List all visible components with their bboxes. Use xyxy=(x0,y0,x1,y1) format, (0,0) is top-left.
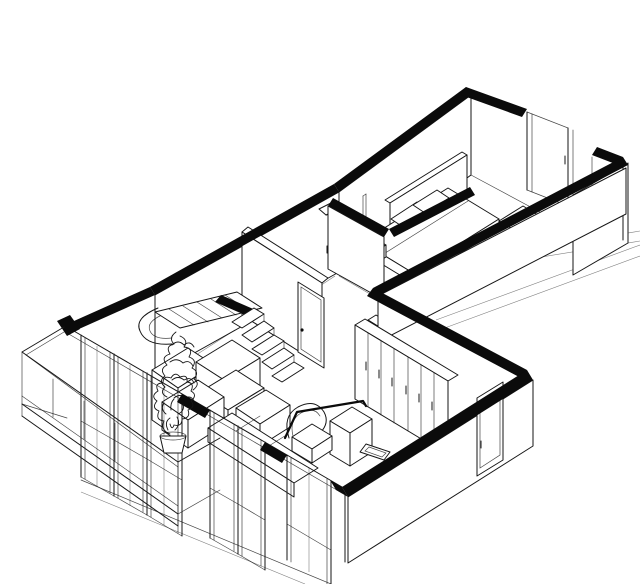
facade-window xyxy=(81,335,114,496)
kitchen xyxy=(292,407,390,466)
door-handle-icon xyxy=(300,328,303,331)
floorplan-figure xyxy=(0,0,640,584)
facade-window xyxy=(114,354,147,515)
sink-icon xyxy=(360,444,390,460)
cut-wall-facade-nw xyxy=(65,287,155,333)
kitchen-cabinet xyxy=(330,407,372,466)
floorplan-drawing xyxy=(0,0,640,584)
